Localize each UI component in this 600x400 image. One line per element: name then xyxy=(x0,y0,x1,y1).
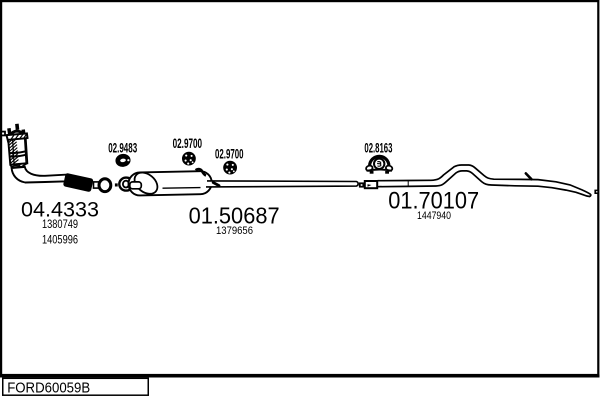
svg-text:04.4333: 04.4333 xyxy=(21,197,99,221)
svg-text:02.8163: 02.8163 xyxy=(364,140,392,156)
svg-text:1380749: 1380749 xyxy=(42,219,78,231)
svg-text:02.9700: 02.9700 xyxy=(215,146,244,162)
svg-text:02.9483: 02.9483 xyxy=(108,140,137,156)
svg-text:02.9700: 02.9700 xyxy=(173,136,203,152)
svg-text:1405996: 1405996 xyxy=(42,234,78,246)
svg-text:1379656: 1379656 xyxy=(216,225,253,237)
svg-text:FORD60059B: FORD60059B xyxy=(7,380,90,397)
svg-text:1447940: 1447940 xyxy=(417,210,451,222)
